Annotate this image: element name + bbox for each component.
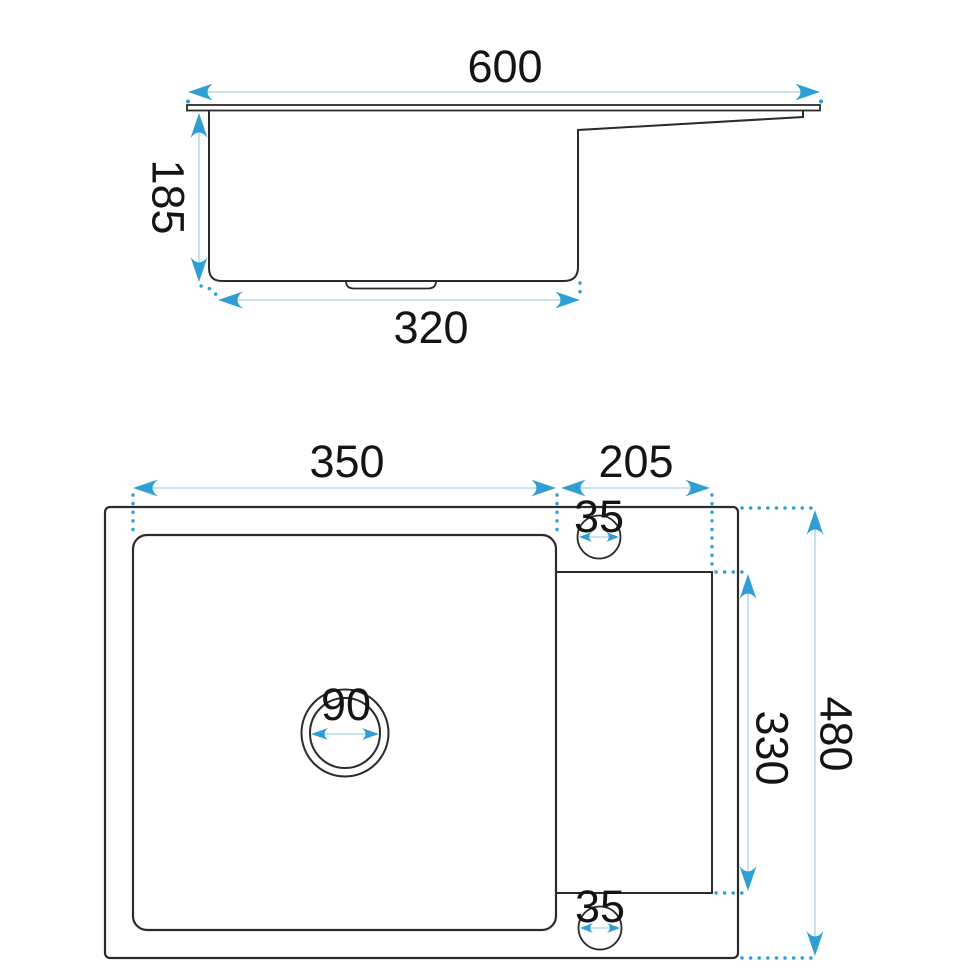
extension-dot — [186, 100, 190, 104]
dim-label-185: 185 — [142, 159, 193, 234]
dim-overall-width-600: 600 — [186, 41, 823, 104]
plan-view: 350 205 35 90 — [105, 436, 861, 958]
dim-tap-hole-top-35: 35 — [574, 491, 624, 542]
dim-label-35-bottom: 35 — [575, 881, 625, 932]
plan-view-outer-body — [105, 507, 738, 958]
dim-drainer-length-330: 330 — [716, 572, 797, 893]
dim-label-350: 350 — [309, 436, 384, 487]
dim-label-330: 330 — [746, 710, 797, 785]
extension-dots — [201, 286, 217, 298]
dim-bowl-depth-185: 185 — [142, 113, 217, 298]
dim-drain-90: 90 — [311, 679, 379, 740]
dim-bowl-bottom-320: 320 — [218, 283, 580, 353]
plan-view-drainer-recess — [556, 572, 712, 893]
side-view-drain-recess — [346, 281, 436, 289]
dim-label-35-top: 35 — [574, 491, 624, 542]
dim-label-90: 90 — [321, 679, 371, 730]
dim-tap-hole-bottom-35: 35 — [575, 881, 625, 933]
side-view-profile — [209, 111, 803, 282]
plan-view-bowl — [133, 535, 556, 930]
dim-label-205: 205 — [598, 436, 673, 487]
dim-label-480: 480 — [810, 696, 861, 771]
dim-bowl-width-350: 350 — [133, 436, 557, 533]
dim-label-320: 320 — [393, 302, 468, 353]
side-view: 600 185 320 — [142, 41, 823, 353]
extension-dot — [819, 100, 823, 104]
sink-technical-drawing: 600 185 320 — [0, 0, 970, 971]
drawing-canvas: 600 185 320 — [0, 0, 970, 971]
dim-label-600: 600 — [467, 41, 542, 92]
side-view-rim — [187, 105, 820, 111]
